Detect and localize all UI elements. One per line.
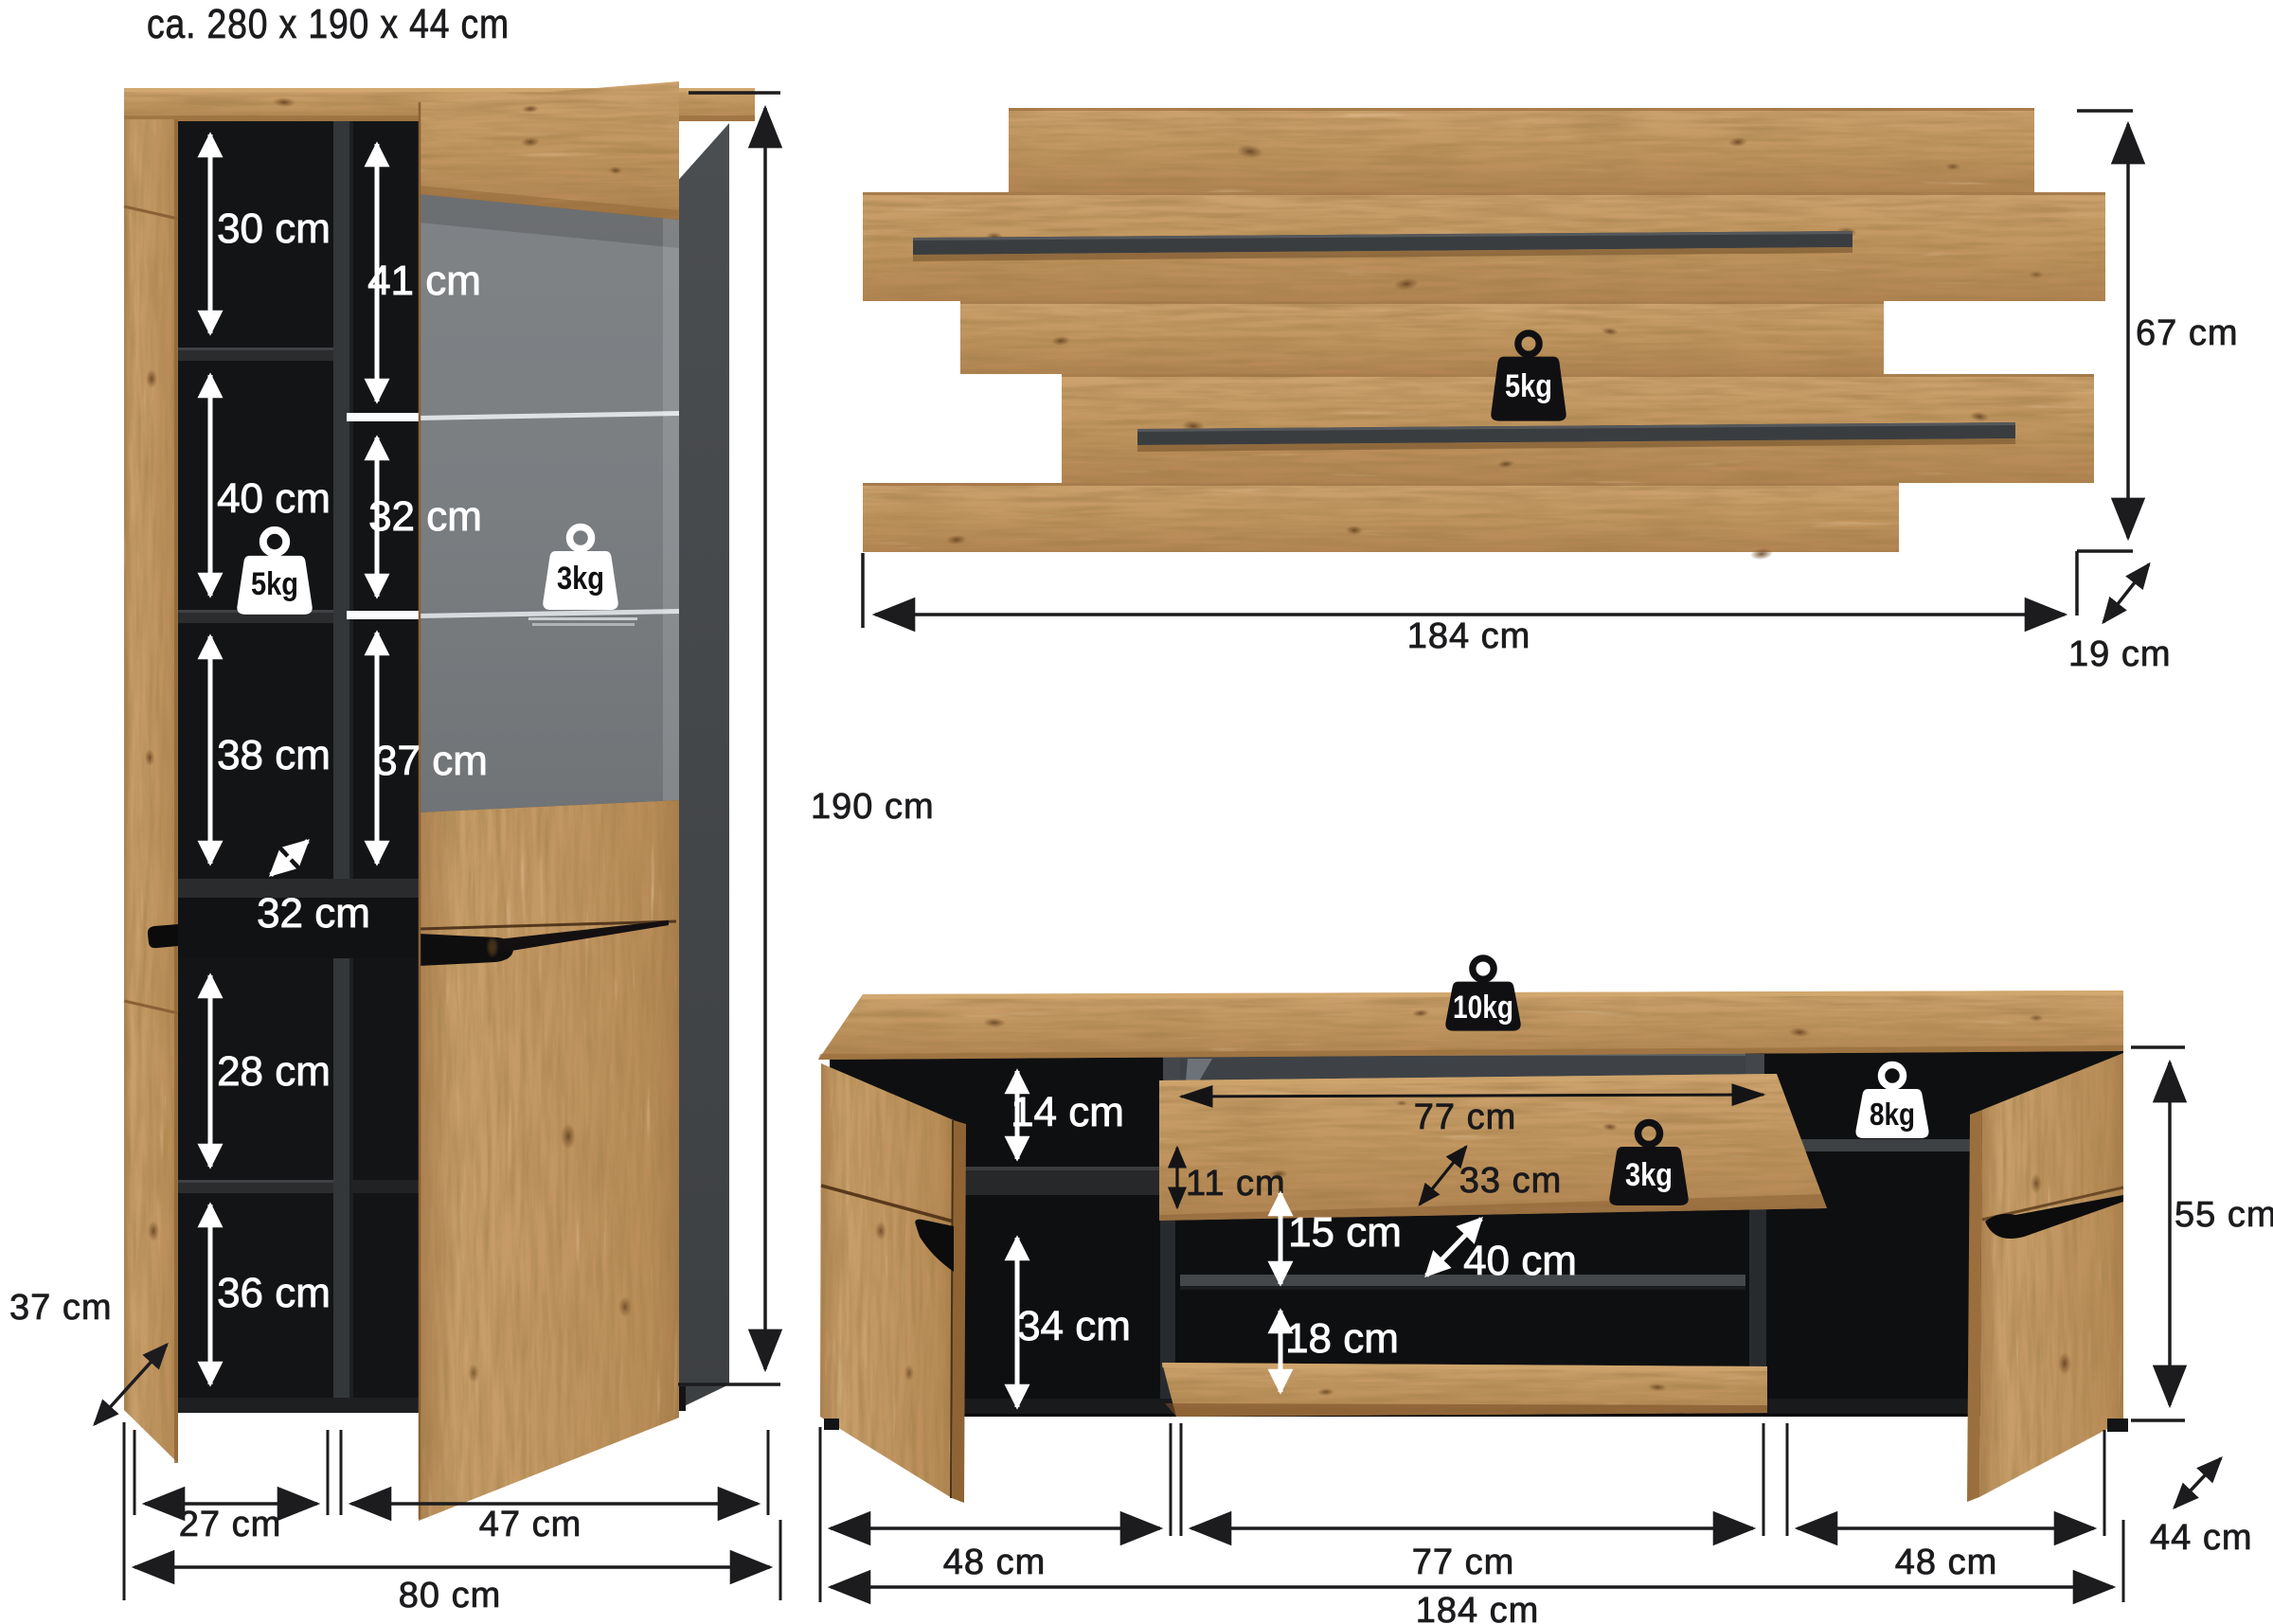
svg-text:14 cm: 14 cm — [1011, 1089, 1124, 1135]
svg-text:33 cm: 33 cm — [1459, 1161, 1562, 1201]
svg-text:48 cm: 48 cm — [943, 1543, 1046, 1582]
svg-text:11 cm: 11 cm — [1186, 1164, 1286, 1204]
svg-text:80 cm: 80 cm — [399, 1576, 501, 1615]
svg-text:5kg: 5kg — [1505, 368, 1552, 404]
svg-text:55 cm: 55 cm — [2175, 1195, 2273, 1235]
svg-text:30 cm: 30 cm — [217, 205, 331, 252]
svg-text:34 cm: 34 cm — [1017, 1303, 1131, 1349]
svg-text:10kg: 10kg — [1453, 990, 1513, 1026]
svg-text:18 cm: 18 cm — [1285, 1315, 1399, 1362]
svg-text:37 cm: 37 cm — [9, 1288, 112, 1328]
svg-text:184 cm: 184 cm — [1407, 616, 1531, 656]
svg-text:38 cm: 38 cm — [217, 732, 331, 778]
svg-text:32 cm: 32 cm — [257, 890, 370, 937]
svg-text:67 cm: 67 cm — [2136, 313, 2238, 353]
svg-text:8kg: 8kg — [1870, 1097, 1915, 1132]
svg-text:27 cm: 27 cm — [179, 1505, 281, 1544]
svg-text:19 cm: 19 cm — [2068, 634, 2171, 674]
svg-text:44 cm: 44 cm — [2150, 1518, 2252, 1558]
svg-text:40 cm: 40 cm — [217, 475, 331, 522]
svg-text:48 cm: 48 cm — [1895, 1543, 1997, 1582]
svg-text:3kg: 3kg — [1625, 1157, 1673, 1193]
svg-text:36 cm: 36 cm — [217, 1270, 331, 1316]
svg-text:40 cm: 40 cm — [1463, 1238, 1577, 1284]
svg-text:32 cm: 32 cm — [368, 493, 482, 540]
svg-text:77 cm: 77 cm — [1412, 1543, 1514, 1582]
svg-text:47 cm: 47 cm — [479, 1505, 582, 1544]
svg-text:77 cm: 77 cm — [1414, 1098, 1516, 1137]
svg-text:190 cm: 190 cm — [811, 787, 935, 827]
svg-text:28 cm: 28 cm — [217, 1048, 331, 1095]
svg-text:5kg: 5kg — [251, 566, 298, 602]
svg-text:ca. 280 x 190 x 44 cm: ca. 280 x 190 x 44 cm — [147, 1, 510, 47]
svg-text:3kg: 3kg — [557, 561, 604, 597]
svg-text:15 cm: 15 cm — [1288, 1209, 1402, 1256]
svg-text:41 cm: 41 cm — [367, 258, 481, 304]
svg-text:37 cm: 37 cm — [374, 738, 488, 784]
svg-text:184 cm: 184 cm — [1416, 1591, 1540, 1624]
